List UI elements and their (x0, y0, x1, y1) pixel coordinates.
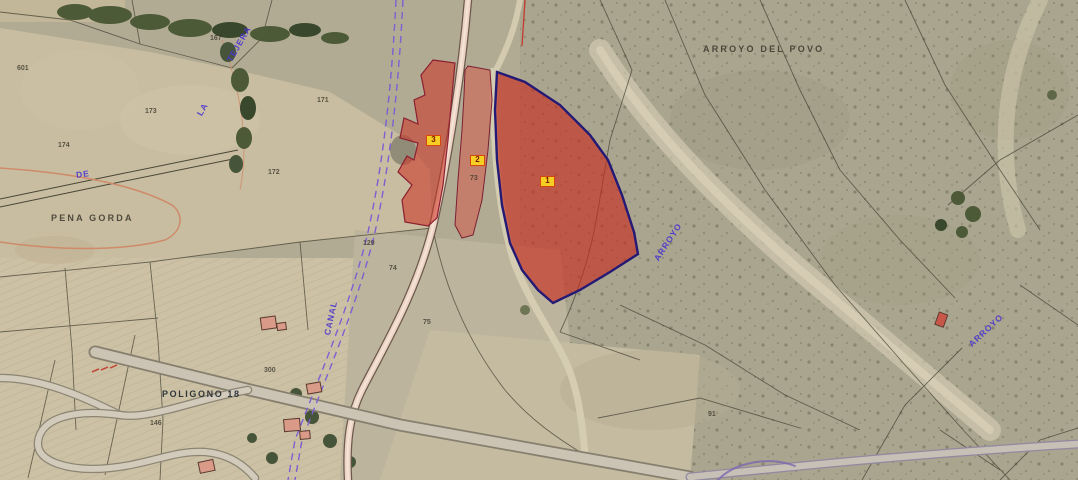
parcel-badge-3: 3 (426, 135, 441, 146)
parcel-badge-1: 1 (540, 176, 555, 187)
parcel-badge-2: 2 (470, 155, 485, 166)
map-graphics (0, 0, 1078, 480)
aerial-cadastral-map[interactable]: ARROYO DEL POVO PENA GORDA POLIGONO 18 L… (0, 0, 1078, 480)
